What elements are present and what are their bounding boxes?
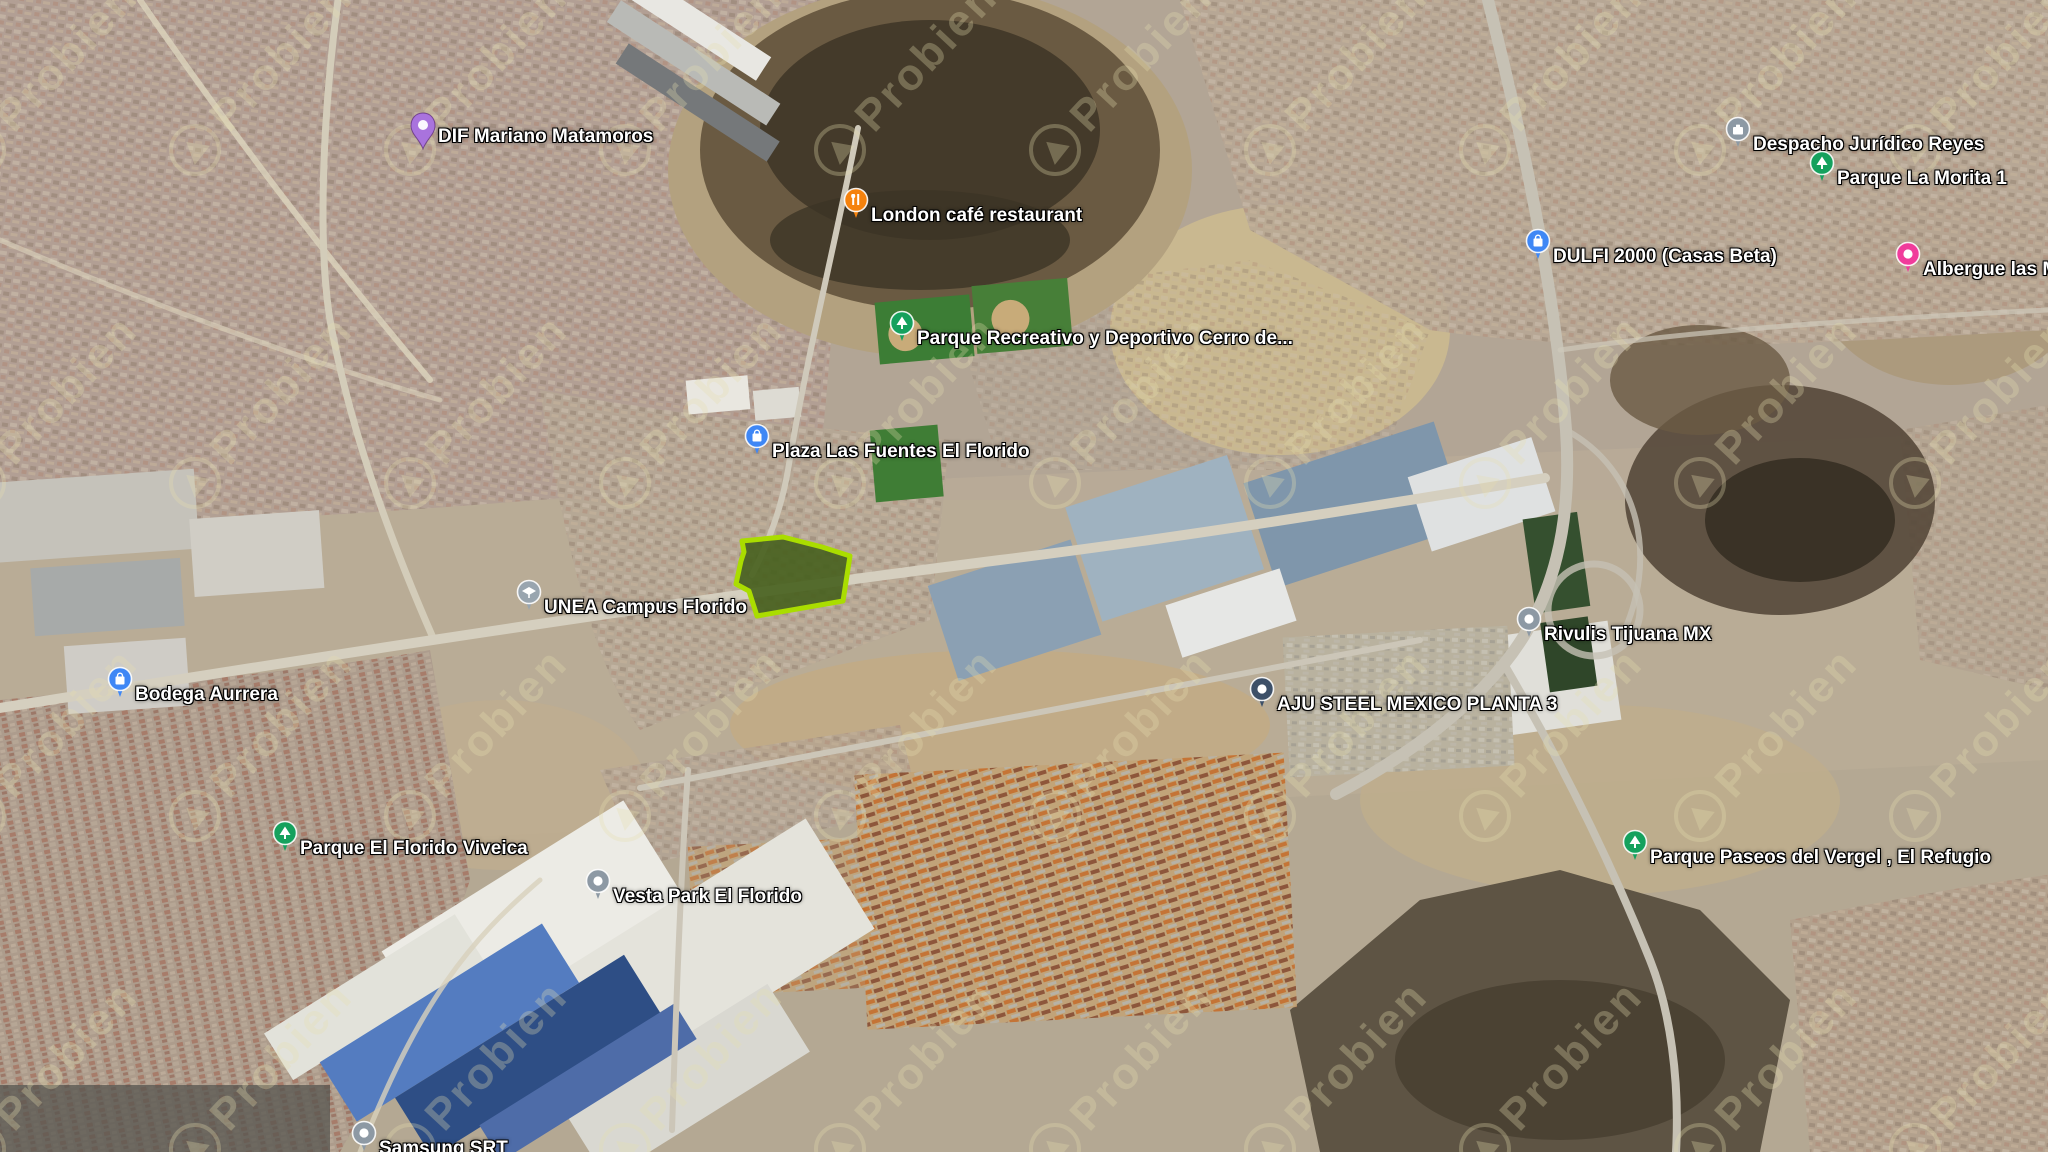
shopping-bag-icon[interactable] [743, 423, 771, 457]
shopping-cart-icon[interactable] [106, 666, 134, 700]
park-tree-icon[interactable] [1808, 150, 1836, 184]
factory-icon[interactable] [1248, 676, 1276, 710]
lodging-icon[interactable] [1894, 241, 1922, 275]
park-tree-icon[interactable] [271, 820, 299, 854]
map-label-text: Samsung SRT [379, 1137, 508, 1152]
restaurant-icon[interactable] [842, 187, 870, 221]
park-tree-icon[interactable] [1621, 829, 1649, 863]
school-icon[interactable] [515, 579, 543, 613]
map-label-text: DIF Mariano Matamoros [438, 125, 653, 148]
park-tree-icon[interactable] [888, 310, 916, 344]
map-label-text: Vesta Park El Florido [613, 885, 802, 908]
map-label-text: Parque Paseos del Vergel , El Refugio [1650, 846, 1991, 869]
map-label-text: London café restaurant [871, 204, 1082, 227]
briefcase-icon[interactable] [1724, 116, 1752, 150]
satellite-map[interactable]: ProbienProbienProbienProbienProbienProbi… [0, 0, 2048, 1152]
map-label-text: Parque La Morita 1 [1837, 167, 2007, 190]
factory-icon[interactable] [1515, 606, 1543, 640]
map-label-text: UNEA Campus Florido [544, 596, 747, 619]
map-label-text: Parque El Florido Viveica [300, 837, 528, 860]
map-label-text: Bodega Aurrera [135, 683, 278, 706]
community-balloon-icon[interactable] [410, 112, 436, 150]
map-label-text: DULFI 2000 (Casas Beta) [1553, 245, 1777, 268]
poi-label-layer: DIF Mariano Matamoros London café restau… [0, 0, 2048, 1152]
map-label-text: Plaza Las Fuentes El Florido [772, 440, 1030, 463]
factory-icon[interactable] [350, 1120, 378, 1152]
map-label-text: Albergue las Me [1923, 258, 2048, 281]
factory-icon[interactable] [584, 868, 612, 902]
map-label-text: AJU STEEL MEXICO PLANTA 3 [1277, 693, 1557, 716]
shopping-bag-icon[interactable] [1524, 228, 1552, 262]
map-label-text: Rivulis Tijuana MX [1544, 623, 1712, 646]
map-label-text: Parque Recreativo y Deportivo Cerro de..… [917, 327, 1293, 350]
map-label-text: Despacho Jurídico Reyes [1753, 133, 1984, 156]
